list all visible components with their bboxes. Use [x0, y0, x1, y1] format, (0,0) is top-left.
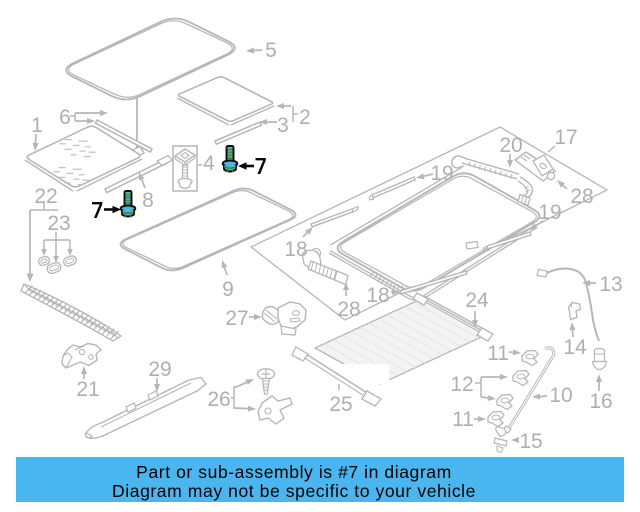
svg-text:13: 13 [599, 273, 622, 296]
svg-text:11: 11 [452, 408, 474, 431]
svg-text:21: 21 [76, 378, 99, 401]
svg-text:23: 23 [47, 212, 70, 235]
svg-text:29: 29 [148, 358, 171, 381]
svg-text:22: 22 [34, 185, 57, 208]
svg-text:18: 18 [284, 238, 307, 261]
svg-text:25: 25 [329, 393, 352, 416]
svg-text:20: 20 [499, 134, 522, 157]
svg-text:28: 28 [570, 185, 593, 208]
svg-text:10: 10 [549, 384, 572, 407]
svg-text:9: 9 [222, 278, 234, 301]
svg-text:8: 8 [142, 189, 154, 212]
svg-text:4: 4 [203, 152, 215, 175]
svg-text:17: 17 [554, 126, 577, 149]
svg-text:15: 15 [519, 430, 542, 453]
svg-text:3: 3 [277, 114, 289, 137]
svg-text:19: 19 [430, 162, 453, 185]
svg-text:11: 11 [487, 342, 509, 365]
svg-text:26: 26 [207, 388, 230, 411]
svg-text:24: 24 [465, 289, 489, 312]
svg-text:18: 18 [366, 284, 389, 307]
svg-text:27: 27 [225, 307, 248, 330]
svg-text:19: 19 [538, 201, 561, 224]
svg-text:6: 6 [59, 106, 71, 129]
svg-text:12: 12 [450, 373, 473, 396]
svg-text:14: 14 [563, 336, 587, 359]
svg-text:28: 28 [337, 298, 360, 321]
svg-text:2: 2 [299, 106, 311, 129]
svg-text:1: 1 [31, 114, 43, 137]
svg-text:5: 5 [265, 39, 277, 62]
svg-text:16: 16 [589, 390, 612, 413]
